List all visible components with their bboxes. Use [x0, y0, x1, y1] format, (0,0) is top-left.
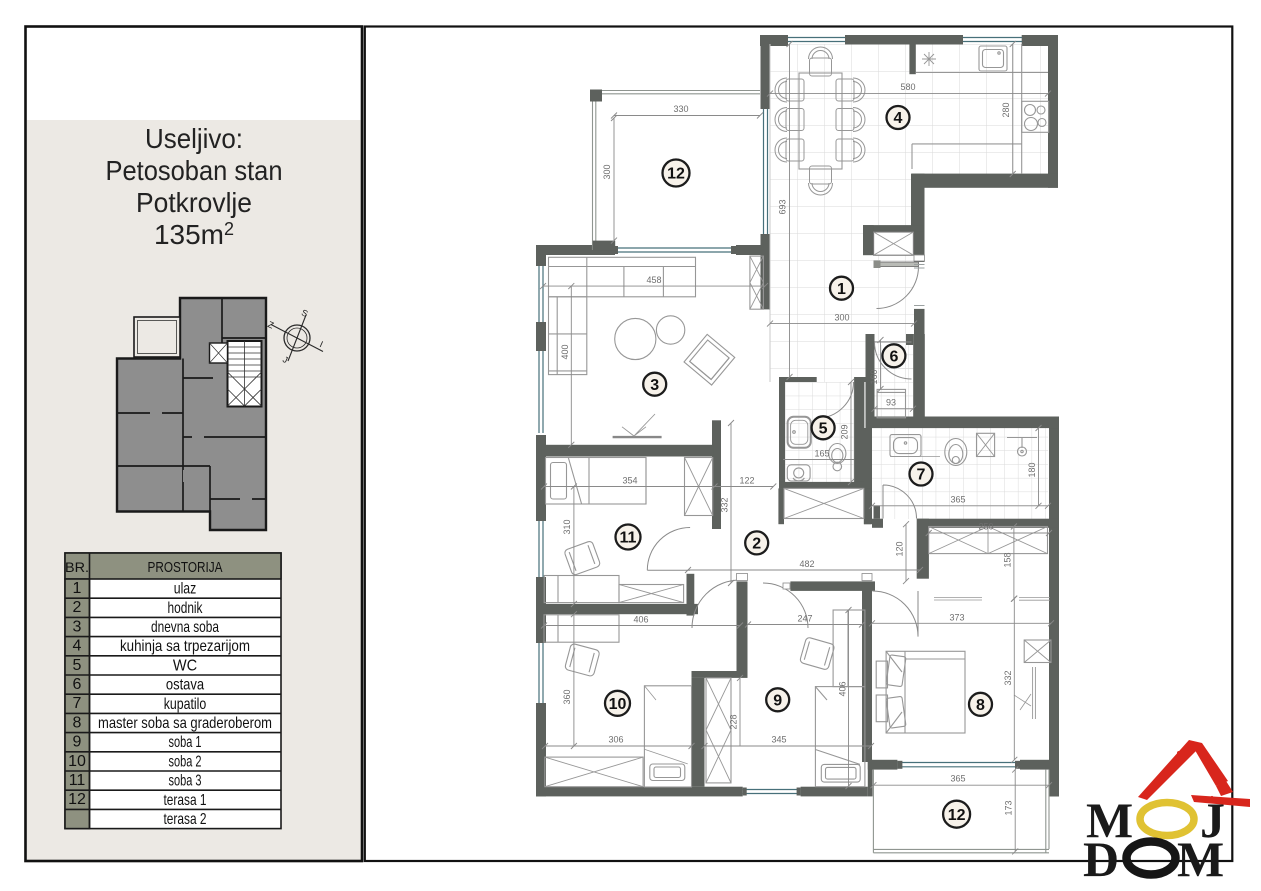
- svg-text:dnevna soba: dnevna soba: [151, 619, 219, 636]
- svg-text:2: 2: [73, 599, 82, 616]
- svg-text:Useljivo:: Useljivo:: [145, 123, 243, 154]
- svg-text:4: 4: [894, 110, 903, 127]
- svg-text:6: 6: [73, 676, 82, 693]
- svg-text:6: 6: [889, 348, 898, 365]
- svg-text:9: 9: [73, 734, 82, 751]
- svg-text:458: 458: [646, 275, 661, 285]
- svg-text:8: 8: [73, 714, 82, 731]
- svg-text:ostava: ostava: [166, 677, 204, 694]
- svg-text:120: 120: [895, 541, 905, 556]
- svg-text:180: 180: [1027, 462, 1037, 477]
- svg-text:5: 5: [819, 420, 828, 437]
- svg-text:ulaz: ulaz: [174, 581, 197, 598]
- svg-text:300: 300: [834, 313, 849, 323]
- svg-text:D: D: [1083, 831, 1119, 887]
- svg-text:332: 332: [720, 497, 730, 512]
- svg-text:165: 165: [814, 449, 829, 459]
- svg-text:209: 209: [840, 424, 850, 439]
- svg-text:360: 360: [562, 689, 572, 704]
- svg-text:158: 158: [1003, 552, 1013, 567]
- svg-text:12: 12: [667, 166, 685, 183]
- svg-text:8: 8: [976, 697, 985, 714]
- svg-text:master soba sa graderoberom: master soba sa graderoberom: [98, 715, 272, 732]
- svg-text:3: 3: [73, 618, 82, 635]
- svg-text:11: 11: [620, 530, 637, 547]
- svg-text:1: 1: [837, 281, 846, 298]
- svg-text:160: 160: [869, 369, 879, 384]
- svg-text:PROSTORIJA: PROSTORIJA: [148, 559, 223, 576]
- svg-text:310: 310: [562, 519, 572, 534]
- svg-text:12: 12: [948, 807, 966, 824]
- svg-text:400: 400: [560, 344, 570, 359]
- svg-text:345: 345: [771, 735, 786, 745]
- svg-text:Potkrovlje: Potkrovlje: [136, 187, 252, 218]
- svg-text:1: 1: [73, 580, 82, 597]
- svg-text:332: 332: [1003, 670, 1013, 685]
- svg-text:9: 9: [773, 692, 782, 709]
- svg-text:terasa 2: terasa 2: [164, 811, 207, 828]
- svg-text:10: 10: [609, 696, 627, 713]
- svg-text:373: 373: [949, 613, 964, 623]
- svg-text:93: 93: [886, 398, 896, 408]
- svg-text:228: 228: [729, 714, 739, 729]
- svg-text:hodnik: hodnik: [168, 600, 204, 617]
- svg-text:kupatilo: kupatilo: [164, 696, 207, 713]
- svg-text:soba 1: soba 1: [169, 734, 202, 751]
- svg-text:7: 7: [73, 695, 82, 712]
- svg-text:247: 247: [797, 614, 812, 624]
- svg-text:135m2: 135m2: [154, 219, 234, 250]
- svg-text:693: 693: [778, 199, 788, 214]
- svg-text:terasa 1: terasa 1: [164, 792, 207, 809]
- svg-text:354: 354: [622, 476, 637, 486]
- svg-text:11: 11: [69, 772, 86, 789]
- svg-text:580: 580: [900, 82, 915, 92]
- svg-text:250: 250: [978, 522, 993, 532]
- svg-text:5: 5: [73, 657, 82, 674]
- svg-text:406: 406: [633, 615, 648, 625]
- svg-text:306: 306: [608, 735, 623, 745]
- svg-text:7: 7: [917, 467, 926, 484]
- svg-text:kuhinja sa trpezarijom: kuhinja sa trpezarijom: [120, 638, 250, 655]
- svg-text:soba 3: soba 3: [169, 773, 202, 790]
- svg-text:280: 280: [1001, 102, 1011, 117]
- svg-text:M: M: [1177, 831, 1224, 887]
- svg-text:173: 173: [1004, 800, 1014, 815]
- svg-text:3: 3: [650, 377, 659, 394]
- svg-text:406: 406: [838, 681, 848, 696]
- svg-text:365: 365: [950, 774, 965, 784]
- svg-text:122: 122: [739, 476, 754, 486]
- svg-text:300: 300: [602, 164, 612, 179]
- svg-text:soba 2: soba 2: [169, 753, 202, 770]
- svg-text:12: 12: [68, 791, 86, 808]
- svg-text:482: 482: [799, 559, 814, 569]
- svg-text:WC: WC: [173, 657, 197, 674]
- svg-text:Petosoban stan: Petosoban stan: [106, 155, 283, 186]
- svg-text:2: 2: [752, 536, 761, 553]
- svg-text:BR.: BR.: [65, 559, 89, 575]
- svg-text:4: 4: [73, 638, 82, 655]
- svg-text:330: 330: [673, 104, 688, 114]
- svg-text:365: 365: [950, 495, 965, 505]
- svg-text:10: 10: [68, 753, 86, 770]
